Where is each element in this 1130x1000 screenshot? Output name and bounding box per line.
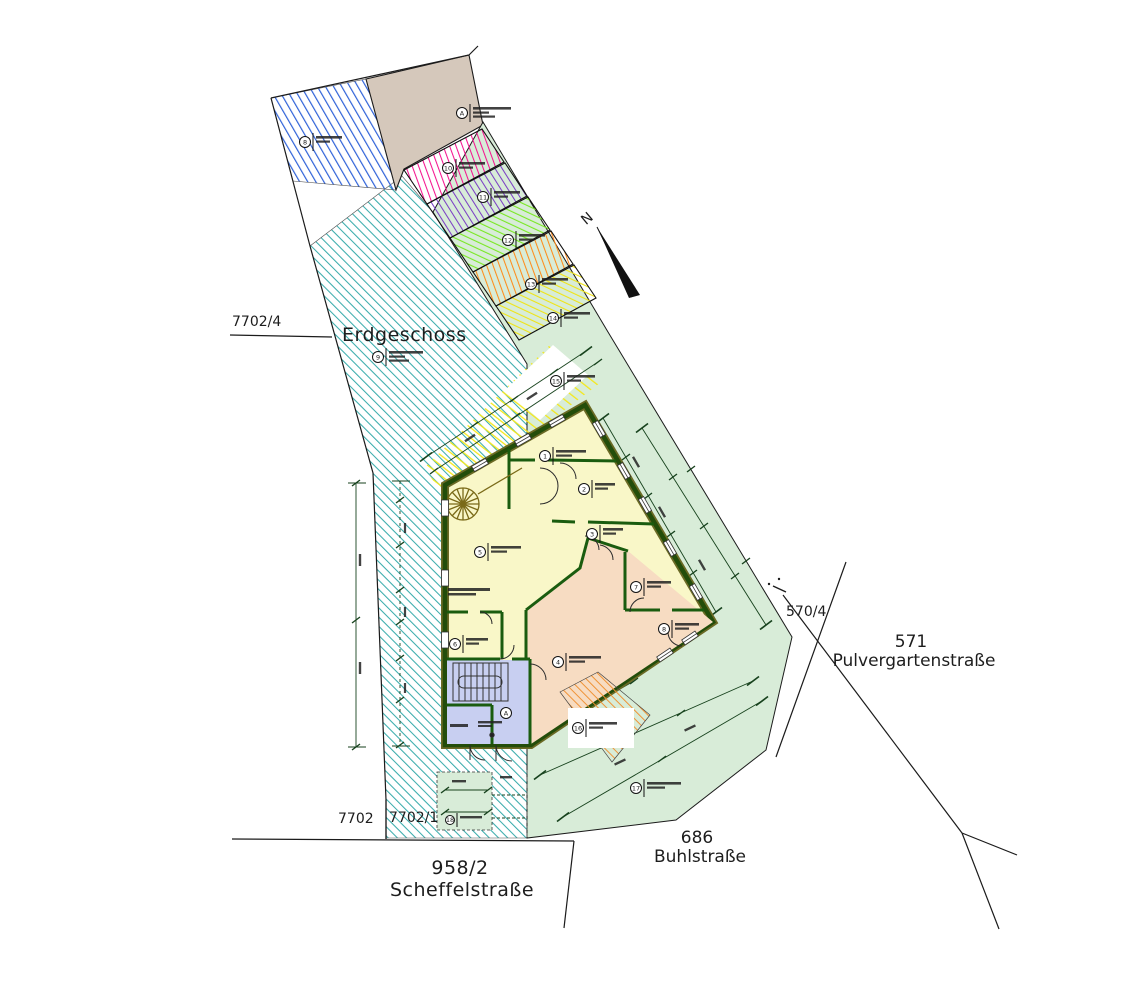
label-parcel-571: 571	[895, 632, 927, 652]
label-parcel-7702: 7702	[338, 811, 374, 827]
label-street-buhlstrasse: Buhlstraße	[654, 847, 746, 867]
label-parcel-958-2: 958/2	[431, 857, 488, 879]
lift-room-text-smudge	[450, 724, 468, 727]
boundary-marker-tick	[768, 578, 786, 592]
svg-text:10: 10	[444, 164, 452, 172]
svg-text:6: 6	[453, 640, 457, 648]
svg-text:12: 12	[504, 236, 512, 244]
svg-text:A: A	[460, 109, 465, 117]
label-erdgeschoss: Erdgeschoss	[342, 324, 467, 346]
label-street-pulvergartenstrasse: Pulvergartenstraße	[833, 651, 996, 671]
label-parcel-7702-4: 7702/4	[232, 314, 281, 330]
svg-text:5: 5	[478, 548, 482, 556]
svg-text:13: 13	[527, 280, 535, 288]
svg-text:7: 7	[634, 583, 638, 591]
svg-text:11: 11	[479, 193, 487, 201]
plan-canvas: N A 8 9 10 11 12 13	[0, 0, 1130, 1000]
label-parcel-570-4: 570/4	[786, 604, 826, 620]
svg-text:8: 8	[662, 625, 666, 633]
svg-text:1: 1	[543, 452, 547, 460]
label-parcel-7702-1: 7702/1	[389, 810, 438, 826]
site-plan-erdgeschoss: N A 8 9 10 11 12 13	[0, 0, 1130, 1000]
svg-text:15: 15	[552, 377, 560, 385]
svg-text:8: 8	[303, 138, 307, 146]
svg-text:4: 4	[556, 658, 560, 666]
label-parcel-686: 686	[681, 828, 713, 848]
svg-text:14: 14	[549, 314, 557, 322]
svg-text:2: 2	[582, 485, 586, 493]
svg-text:A: A	[504, 709, 509, 717]
svg-text:3: 3	[590, 530, 594, 538]
svg-text:17: 17	[632, 784, 640, 792]
svg-text:18: 18	[446, 816, 454, 824]
label-street-scheffelstrasse: Scheffelstraße	[390, 879, 534, 901]
svg-text:16: 16	[574, 724, 582, 732]
north-label: N	[578, 209, 596, 228]
svg-text:9: 9	[376, 353, 380, 361]
